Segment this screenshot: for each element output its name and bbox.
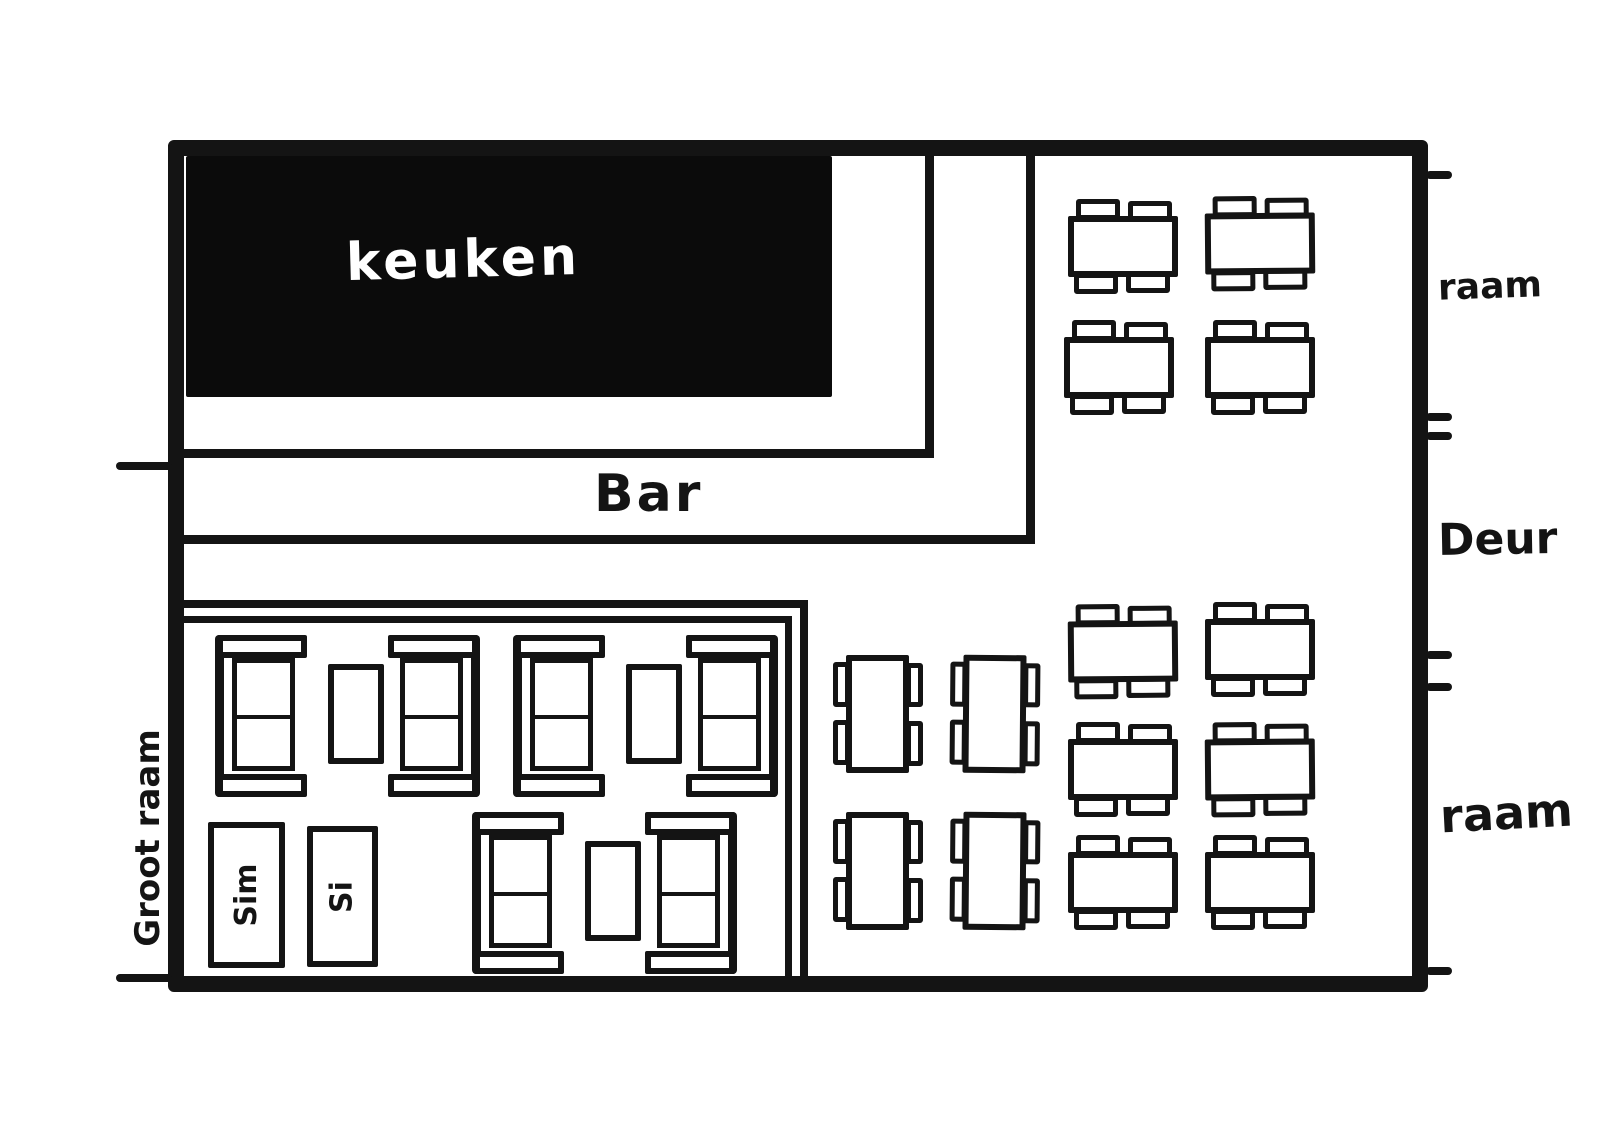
booth-seating-group xyxy=(472,812,737,974)
sofa-seat-cushions xyxy=(657,835,720,948)
sofa-back xyxy=(728,812,737,974)
labeled-box-si: Si xyxy=(307,826,378,967)
table-top xyxy=(1205,852,1315,913)
sofa-armrest xyxy=(388,774,478,797)
dining-table-4seat-horizontal xyxy=(1068,604,1179,701)
window-label-top-right: raam xyxy=(1437,264,1542,309)
sofa-seat-cushions xyxy=(489,835,552,948)
dining-table-4seat-horizontal xyxy=(1068,835,1178,931)
booth-seating-group xyxy=(215,635,480,797)
booth-seating-group xyxy=(513,635,778,797)
table-top xyxy=(962,812,1026,931)
sofa-seat-cushions xyxy=(530,658,593,771)
sofa-back xyxy=(769,635,778,797)
dining-table-4seat-horizontal xyxy=(1205,835,1315,931)
sofa-armrest xyxy=(474,812,564,835)
sofa-armrest xyxy=(645,812,735,835)
big-window-label: Groot raam xyxy=(128,688,172,988)
wall-opening-tick xyxy=(116,974,172,982)
sofa-back xyxy=(513,635,522,797)
dining-table-4seat-horizontal xyxy=(1205,320,1315,416)
sofa-seat-cushions xyxy=(232,658,295,771)
table-top xyxy=(1068,739,1178,800)
wall-opening-tick xyxy=(1426,432,1452,440)
wall-opening-tick xyxy=(116,462,172,470)
dining-table-4seat-vertical xyxy=(949,812,1040,931)
dining-table-4seat-horizontal xyxy=(1205,196,1316,293)
sofa-facing-right xyxy=(472,812,564,974)
table-top xyxy=(1064,337,1174,398)
wall-opening-tick xyxy=(1426,413,1452,421)
labeled-box-text: Sim xyxy=(232,828,262,962)
sofa-facing-left xyxy=(645,812,737,974)
table-top xyxy=(1205,213,1316,275)
table-top xyxy=(1205,619,1315,680)
sofa-back xyxy=(472,812,481,974)
sofa-armrest xyxy=(474,951,564,974)
sofa-armrest xyxy=(645,951,735,974)
sofa-armrest xyxy=(515,635,605,658)
sofa-back xyxy=(215,635,224,797)
labeled-box-text: Si xyxy=(328,832,358,961)
door-label: Deur xyxy=(1438,513,1558,566)
sofa-facing-left xyxy=(388,635,480,797)
table-top xyxy=(962,655,1026,774)
table-top xyxy=(1205,337,1315,398)
window-label-bottom-right: raam xyxy=(1439,783,1574,844)
table-top xyxy=(846,655,909,773)
booth-table xyxy=(626,664,682,764)
wall-opening-tick xyxy=(1426,967,1452,975)
dining-table-4seat-horizontal xyxy=(1205,602,1315,698)
sofa-armrest xyxy=(686,774,776,797)
bar-label: Bar xyxy=(594,464,703,524)
dining-table-4seat-vertical xyxy=(833,812,923,930)
sofa-armrest xyxy=(686,635,776,658)
sofa-armrest xyxy=(515,774,605,797)
table-top xyxy=(1068,852,1178,913)
sofa-back xyxy=(471,635,480,797)
dining-table-4seat-vertical xyxy=(949,655,1040,774)
wall-opening-tick xyxy=(1426,683,1452,691)
sofa-seat-cushions xyxy=(698,658,761,771)
dining-table-4seat-vertical xyxy=(833,655,923,773)
wall-opening-tick xyxy=(1426,651,1452,659)
sofa-armrest xyxy=(217,635,307,658)
dining-table-4seat-horizontal xyxy=(1068,722,1178,818)
booth-table xyxy=(328,664,384,764)
table-top xyxy=(1068,216,1178,277)
booth-table xyxy=(585,841,641,941)
sofa-seat-cushions xyxy=(400,658,463,771)
sofa-facing-right xyxy=(513,635,605,797)
table-top xyxy=(1205,739,1316,801)
dining-table-4seat-horizontal xyxy=(1064,320,1174,416)
sofa-facing-left xyxy=(686,635,778,797)
wall-opening-tick xyxy=(1426,171,1452,179)
restaurant-floor-plan: keuken Bar raam Deur raam Groot raam Sim… xyxy=(0,0,1600,1131)
dining-table-4seat-horizontal xyxy=(1205,722,1316,819)
labeled-box-sim: Sim xyxy=(208,822,285,968)
dining-table-4seat-horizontal xyxy=(1068,199,1178,295)
sofa-armrest xyxy=(217,774,307,797)
sofa-armrest xyxy=(388,635,478,658)
table-top xyxy=(846,812,909,930)
table-top xyxy=(1068,621,1179,683)
sofa-facing-right xyxy=(215,635,307,797)
